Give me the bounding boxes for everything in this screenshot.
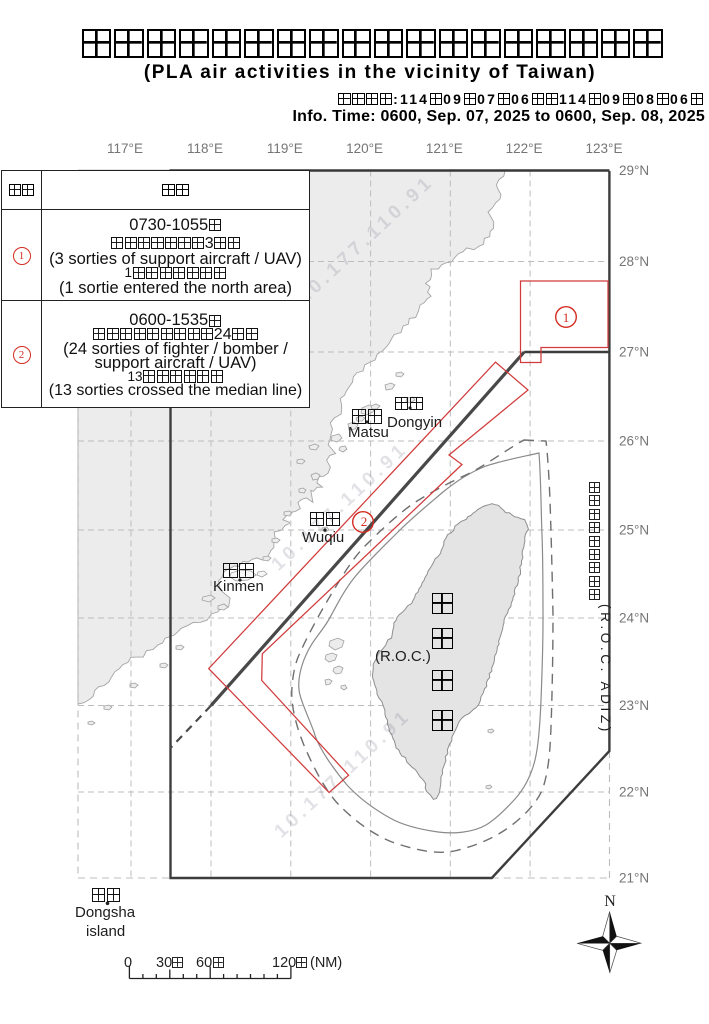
svg-text:122°E: 122°E	[506, 141, 543, 156]
svg-text:N: N	[604, 893, 616, 910]
svg-text:29°N: 29°N	[619, 163, 649, 178]
svg-text:121°E: 121°E	[426, 141, 463, 156]
svg-text:1: 1	[563, 310, 570, 325]
svg-text:27°N: 27°N	[619, 345, 649, 360]
svg-text:21°N: 21°N	[619, 871, 649, 886]
svg-text:2: 2	[361, 514, 368, 529]
svg-text:119°E: 119°E	[267, 141, 303, 156]
svg-text:Dongsha: Dongsha	[75, 904, 136, 921]
svg-text:0: 0	[124, 955, 132, 971]
svg-text:120°E: 120°E	[346, 141, 383, 156]
svg-text:(NM): (NM)	[310, 955, 342, 971]
svg-text:(R.O.C. ADIZ): (R.O.C. ADIZ)	[598, 604, 613, 735]
svg-text:117°E: 117°E	[107, 141, 143, 156]
svg-text:120: 120	[272, 955, 296, 971]
svg-text:30: 30	[156, 955, 172, 971]
svg-text:123°E: 123°E	[586, 141, 623, 156]
svg-text:28°N: 28°N	[619, 254, 649, 269]
svg-text:60: 60	[196, 955, 212, 971]
svg-text:22°N: 22°N	[619, 785, 649, 800]
svg-text:island: island	[86, 923, 125, 940]
svg-text:25°N: 25°N	[619, 523, 649, 538]
svg-text:23°N: 23°N	[619, 698, 649, 713]
svg-text:26°N: 26°N	[619, 434, 649, 449]
svg-text:24°N: 24°N	[619, 611, 649, 626]
svg-text:(R.O.C.): (R.O.C.)	[375, 648, 431, 665]
svg-text:118°E: 118°E	[187, 141, 223, 156]
svg-text:Dongyin: Dongyin	[387, 414, 442, 431]
